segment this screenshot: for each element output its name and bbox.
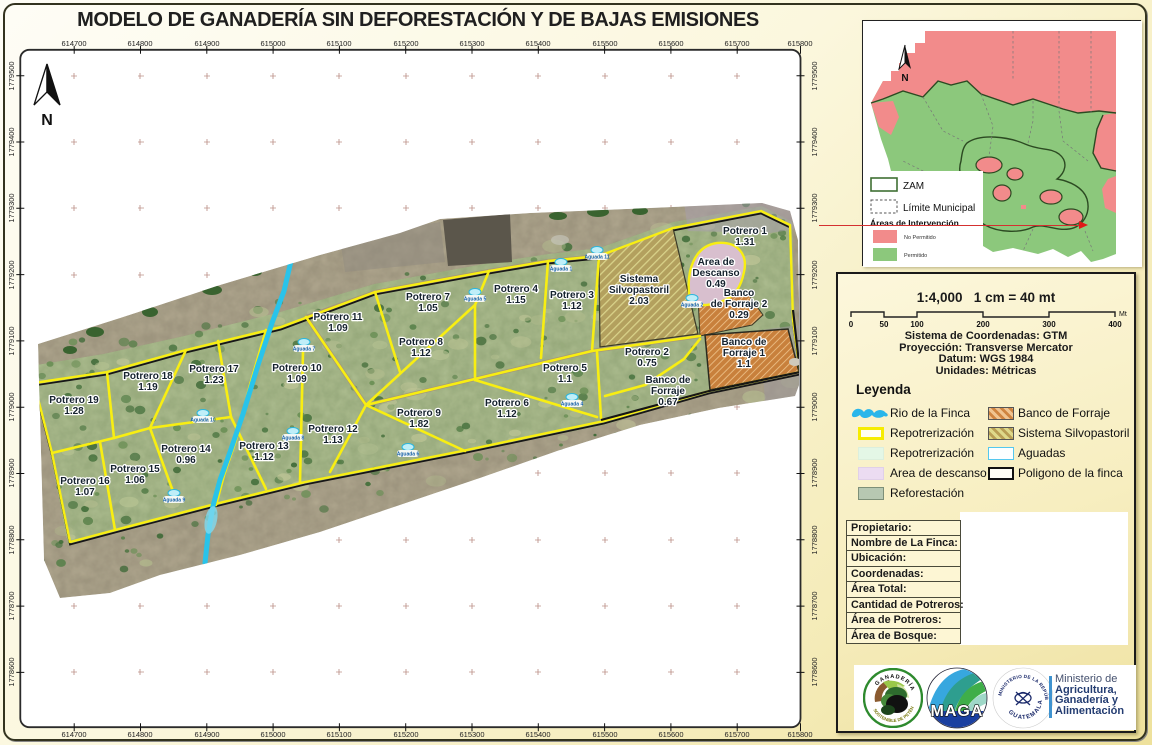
svg-text:1778700: 1778700 — [7, 591, 16, 620]
svg-text:1.13: 1.13 — [323, 435, 343, 446]
svg-text:Banco: Banco — [724, 288, 755, 299]
svg-text:Mt: Mt — [1119, 311, 1127, 318]
svg-text:1.15: 1.15 — [506, 295, 526, 306]
svg-text:1778700: 1778700 — [810, 591, 819, 620]
svg-text:300: 300 — [1042, 320, 1056, 329]
svg-text:1779100: 1779100 — [7, 326, 16, 355]
svg-text:Potrero 11: Potrero 11 — [314, 312, 363, 323]
svg-text:100: 100 — [910, 320, 924, 329]
svg-text:Potrero 13: Potrero 13 — [239, 441, 289, 452]
svg-text:1.12: 1.12 — [497, 409, 517, 420]
svg-text:615500: 615500 — [592, 730, 617, 739]
svg-text:1.07: 1.07 — [75, 487, 95, 498]
svg-text:1778800: 1778800 — [7, 525, 16, 554]
svg-text:Silvopastoril: Silvopastoril — [609, 285, 669, 296]
svg-text:615100: 615100 — [326, 730, 351, 739]
svg-text:N: N — [41, 112, 53, 129]
svg-text:Potrero 16: Potrero 16 — [60, 476, 110, 487]
svg-text:Banco de: Banco de — [645, 375, 690, 386]
svg-text:1.1: 1.1 — [558, 374, 572, 385]
svg-text:1779300: 1779300 — [810, 193, 819, 222]
svg-text:1778800: 1778800 — [810, 525, 819, 554]
svg-text:1.09: 1.09 — [287, 374, 307, 385]
svg-text:1778900: 1778900 — [810, 458, 819, 487]
svg-text:Potrero 7: Potrero 7 — [406, 292, 450, 303]
svg-text:2.03: 2.03 — [629, 296, 649, 307]
svg-text:Aguada 6: Aguada 6 — [397, 452, 420, 458]
svg-text:1779200: 1779200 — [810, 260, 819, 289]
svg-text:614900: 614900 — [194, 730, 219, 739]
svg-text:Sistema: Sistema — [620, 274, 659, 285]
svg-text:1779400: 1779400 — [7, 127, 16, 156]
svg-text:Potrero 18: Potrero 18 — [123, 371, 173, 382]
svg-text:Potrero 2: Potrero 2 — [625, 347, 669, 358]
svg-text:615300: 615300 — [459, 730, 484, 739]
svg-text:Aguada 10: Aguada 10 — [190, 418, 216, 424]
svg-text:1.31: 1.31 — [735, 237, 755, 248]
svg-text:Potrero 4: Potrero 4 — [494, 284, 538, 295]
svg-text:Límite Municipal: Límite Municipal — [903, 203, 975, 214]
svg-text:0.75: 0.75 — [637, 358, 657, 369]
svg-text:Potrero 9: Potrero 9 — [397, 408, 441, 419]
svg-text:615000: 615000 — [260, 730, 285, 739]
svg-text:1.05: 1.05 — [418, 303, 438, 314]
svg-text:Potrero 5: Potrero 5 — [543, 363, 587, 374]
svg-text:615500: 615500 — [592, 39, 617, 48]
svg-text:1779200: 1779200 — [7, 260, 16, 289]
svg-text:0.29: 0.29 — [729, 310, 749, 321]
svg-text:1.82: 1.82 — [409, 419, 429, 430]
svg-text:Banco de: Banco de — [721, 337, 766, 348]
svg-text:Area de: Area de — [698, 257, 735, 268]
svg-text:1.23: 1.23 — [204, 375, 224, 386]
svg-text:615100: 615100 — [326, 39, 351, 48]
svg-text:MAGA: MAGA — [931, 703, 984, 720]
svg-text:Potrero 15: Potrero 15 — [110, 464, 160, 475]
svg-text:No Permitido: No Permitido — [904, 235, 936, 241]
svg-text:615000: 615000 — [260, 39, 285, 48]
svg-text:614800: 614800 — [127, 39, 152, 48]
svg-text:Potrero 3: Potrero 3 — [550, 290, 594, 301]
svg-text:1.28: 1.28 — [64, 406, 84, 417]
svg-text:614700: 614700 — [61, 730, 86, 739]
svg-text:Aguada 11: Aguada 11 — [584, 255, 609, 261]
svg-text:Aguada 1: Aguada 1 — [550, 267, 573, 273]
svg-text:Potrero 10: Potrero 10 — [272, 363, 322, 374]
svg-text:0.67: 0.67 — [658, 397, 678, 408]
svg-text:50: 50 — [880, 320, 889, 329]
svg-text:Potrero 14: Potrero 14 — [161, 444, 211, 455]
svg-text:1779300: 1779300 — [7, 193, 16, 222]
svg-text:615200: 615200 — [393, 39, 418, 48]
svg-text:400: 400 — [1108, 320, 1122, 329]
svg-text:Aguada 2: Aguada 2 — [681, 303, 704, 309]
svg-text:1779400: 1779400 — [810, 127, 819, 156]
svg-text:Potrero 17: Potrero 17 — [189, 364, 239, 375]
svg-text:615600: 615600 — [658, 730, 683, 739]
svg-text:615300: 615300 — [459, 39, 484, 48]
svg-text:1.19: 1.19 — [138, 382, 158, 393]
svg-text:1778600: 1778600 — [810, 657, 819, 686]
svg-text:1.12: 1.12 — [254, 452, 274, 463]
svg-text:Potrero 12: Potrero 12 — [308, 424, 358, 435]
svg-text:Potrero 6: Potrero 6 — [485, 398, 529, 409]
svg-text:614900: 614900 — [194, 39, 219, 48]
svg-text:1.12: 1.12 — [411, 348, 431, 359]
svg-text:Potrero 1: Potrero 1 — [723, 226, 767, 237]
svg-text:Permitido: Permitido — [904, 253, 927, 259]
svg-text:1778900: 1778900 — [7, 458, 16, 487]
svg-text:1779000: 1779000 — [810, 392, 819, 421]
svg-text:Aguada 9: Aguada 9 — [163, 498, 186, 504]
svg-text:614700: 614700 — [61, 39, 86, 48]
svg-text:615400: 615400 — [525, 39, 550, 48]
svg-text:N: N — [901, 73, 908, 84]
svg-text:1778600: 1778600 — [7, 657, 16, 686]
svg-text:Aguada 7: Aguada 7 — [293, 347, 316, 353]
svg-text:615200: 615200 — [393, 730, 418, 739]
svg-text:1.06: 1.06 — [125, 475, 145, 486]
svg-text:1779100: 1779100 — [810, 326, 819, 355]
svg-text:1779000: 1779000 — [7, 392, 16, 421]
svg-text:200: 200 — [976, 320, 990, 329]
svg-text:615700: 615700 — [724, 730, 749, 739]
svg-text:615600: 615600 — [658, 39, 683, 48]
svg-text:Áreas de Intervención: Áreas de Intervención — [870, 218, 959, 228]
svg-text:0: 0 — [849, 320, 854, 329]
svg-text:Descanso: Descanso — [692, 268, 739, 279]
svg-text:de Forraje 2: de Forraje 2 — [711, 299, 768, 310]
svg-text:615800: 615800 — [787, 730, 812, 739]
svg-text:Potrero 19: Potrero 19 — [49, 395, 99, 406]
svg-text:Forraje 1: Forraje 1 — [723, 348, 766, 359]
svg-text:615800: 615800 — [787, 39, 812, 48]
svg-text:614800: 614800 — [127, 730, 152, 739]
svg-text:1.09: 1.09 — [328, 323, 348, 334]
svg-text:0.96: 0.96 — [176, 455, 196, 466]
svg-text:615400: 615400 — [525, 730, 550, 739]
svg-text:615700: 615700 — [724, 39, 749, 48]
svg-text:Potrero 8: Potrero 8 — [399, 337, 443, 348]
svg-text:1.1: 1.1 — [737, 359, 751, 370]
svg-text:Aguada 4: Aguada 4 — [561, 402, 584, 408]
svg-text:ZAM: ZAM — [903, 181, 924, 192]
svg-text:Aguada 5: Aguada 5 — [464, 297, 487, 303]
svg-text:1.12: 1.12 — [562, 301, 582, 312]
svg-text:Forraje: Forraje — [651, 386, 685, 397]
svg-text:1779500: 1779500 — [7, 61, 16, 90]
svg-text:1779500: 1779500 — [810, 61, 819, 90]
